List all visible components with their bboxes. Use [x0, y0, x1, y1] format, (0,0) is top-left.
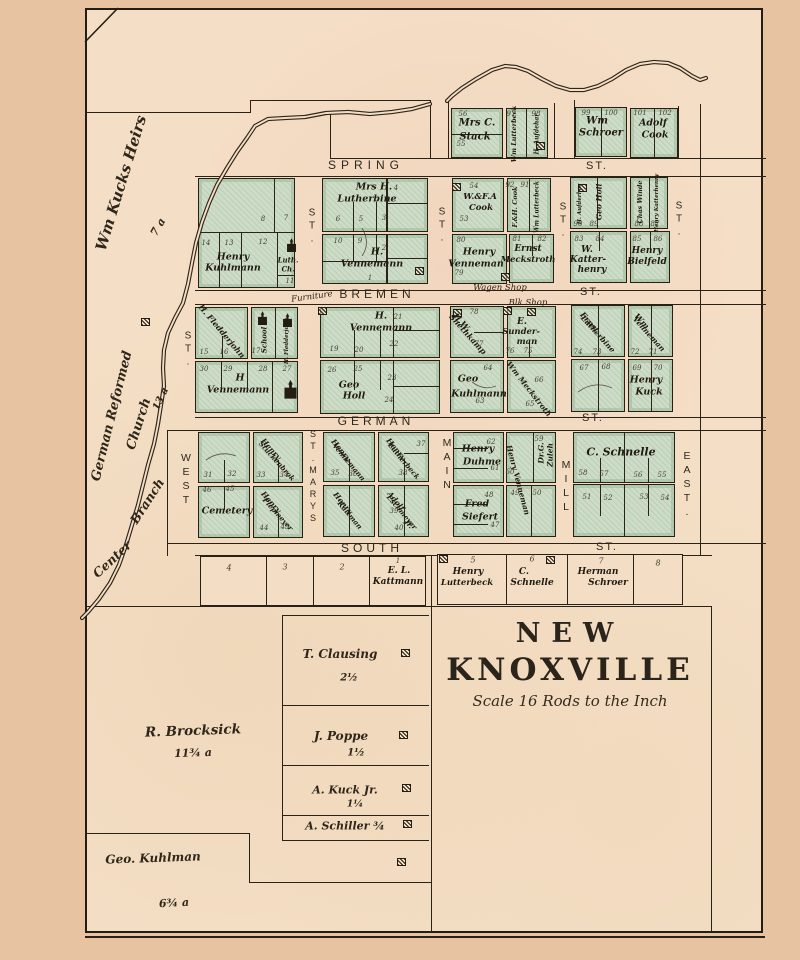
- map-title-line1: NEW: [427, 618, 713, 649]
- map-paper: [85, 8, 763, 933]
- map-title-line2: KNOXVILLE: [427, 652, 713, 688]
- boundary-line: [85, 936, 765, 938]
- map-sheet: SPRINGST.BREMENST.GERMANST.SOUTHST.ST.WE…: [0, 0, 800, 960]
- map-scale-label: Scale 16 Rods to the Inch: [427, 692, 713, 710]
- map-title: NEW KNOXVILLE Scale 16 Rods to the Inch: [427, 618, 713, 710]
